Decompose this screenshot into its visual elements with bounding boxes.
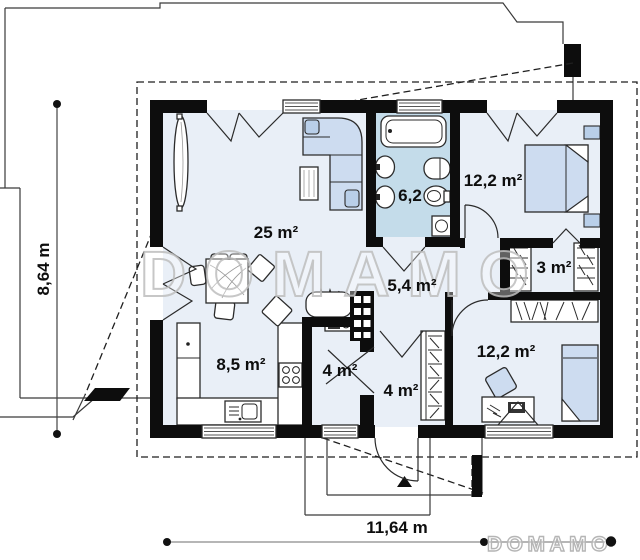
stove-icon	[279, 363, 302, 387]
floor-plan-drawing: DOMAMO DOMAMO	[0, 0, 640, 560]
bedroom1-area-label: 12,2 m²	[464, 171, 523, 191]
floor-plan-page: DOMAMO DOMAMO 25 m² 6,2 12,2 m² 3 m² 5,4…	[0, 0, 640, 560]
bedroom2-area-label: 12,2 m²	[477, 342, 536, 362]
window-icon	[202, 425, 276, 438]
toilet-icon	[424, 158, 450, 179]
window-icon	[397, 100, 442, 113]
chimney	[564, 44, 581, 77]
vestibule-area-label: 4 m²	[384, 381, 419, 401]
window-icon	[485, 425, 553, 438]
living-room-area-label: 25 m²	[254, 223, 298, 243]
brand-logo: DOMAMO	[487, 533, 616, 556]
desk	[482, 397, 534, 422]
entrance-door-swing	[375, 438, 418, 481]
nightstand	[584, 126, 600, 139]
washing-machine-icon	[432, 216, 451, 236]
porch-pillar	[472, 455, 482, 497]
terrace-step-mark	[84, 388, 130, 401]
counter-mark	[186, 342, 190, 346]
logo-text: DOMAMO	[487, 533, 612, 556]
hall-area-label: 5,4 m²	[387, 276, 436, 296]
nightstand	[584, 214, 600, 227]
entrance-porch	[305, 438, 482, 515]
kitchen-sink-icon	[225, 401, 261, 422]
vestibule-closet	[421, 331, 445, 420]
storage-area-label: 4 m²	[323, 361, 358, 381]
window-icon	[322, 425, 358, 438]
height-dimension-label: 8,64 m	[34, 243, 54, 296]
wardrobe-area-label: 3 m²	[537, 258, 572, 278]
washbasin-icon	[376, 186, 395, 208]
plant-icon	[174, 114, 188, 211]
window-icon	[283, 100, 320, 113]
watermark: DOMAMO	[140, 238, 547, 310]
coffee-table	[300, 167, 318, 200]
kitchen-area-label: 8,5 m²	[216, 355, 265, 375]
bathroom-area-label: 6,2	[398, 186, 422, 206]
logo-dot-icon	[606, 536, 616, 546]
bathtub-icon	[381, 116, 446, 147]
entrance-arrow	[397, 476, 412, 487]
washbasin-icon	[376, 156, 395, 178]
width-dimension-label: 11,64 m	[366, 518, 427, 538]
watermark-text: DOMAMO	[140, 238, 547, 310]
